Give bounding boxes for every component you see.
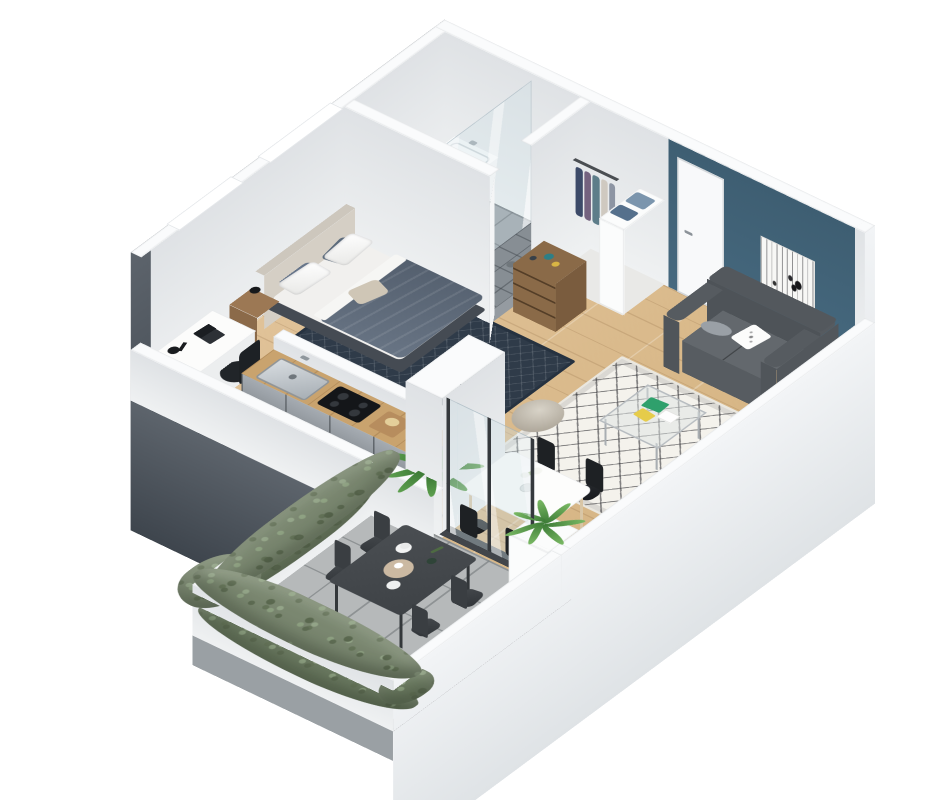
balcony-door-post-1	[446, 397, 450, 538]
closet-shelf-front	[599, 218, 624, 315]
sofa-arm-left-front	[663, 315, 679, 375]
floorplan-render-canvas	[0, 0, 951, 800]
closet-clothes-navy	[576, 166, 583, 218]
closet-clothes-purple	[584, 170, 591, 221]
balcony-door-post-2	[487, 417, 491, 558]
outdoor-table-leg-4	[399, 610, 402, 648]
